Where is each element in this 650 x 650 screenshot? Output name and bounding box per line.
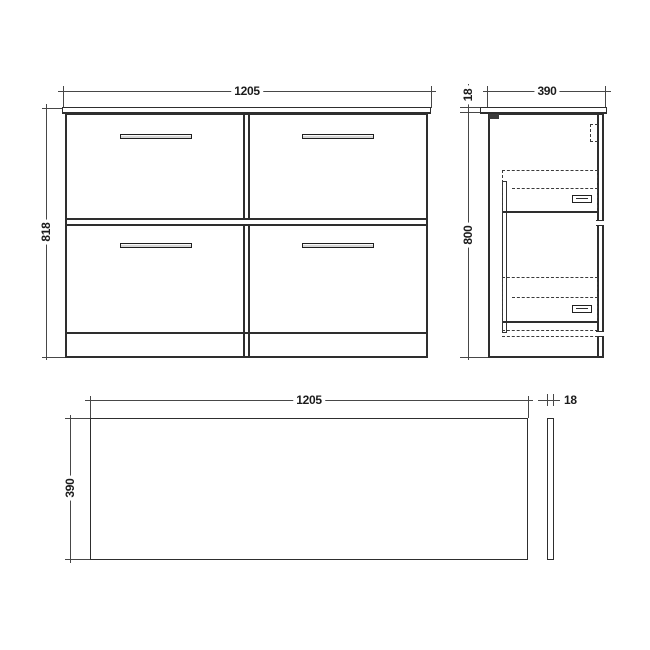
drawer-handle-bottom-right <box>302 243 374 248</box>
side-fixing-bracket <box>489 114 499 119</box>
drawer-handle-top-right <box>302 134 374 139</box>
front-height-extension-top <box>42 108 63 109</box>
side-lower-drawer-inner-line <box>512 297 598 298</box>
technical-drawing: 1205 818 390 18 800 <box>0 0 650 650</box>
plan-width-extension-left <box>90 396 91 418</box>
side-worktop-thickness-label: 18 <box>461 86 475 105</box>
side-upper-drawer-runner-slot <box>576 198 588 199</box>
plan-depth-extension-top <box>65 418 90 419</box>
side-height-extension-bottom <box>460 357 489 358</box>
plan-depth-extension-bottom <box>65 559 90 560</box>
side-lower-drawer-runner <box>572 305 592 313</box>
drawer-handle-top-left <box>120 134 192 139</box>
side-upper-drawer-bottom <box>503 211 598 213</box>
side-lower-drawer-runner-slot <box>576 308 588 309</box>
plan-width-extension-right <box>528 396 529 418</box>
side-upper-drawer-box <box>502 170 598 213</box>
side-notch-bottom <box>590 141 598 142</box>
front-height-extension-bottom <box>42 357 66 358</box>
plan-panel-extension-right <box>553 394 554 406</box>
front-width-extension-right <box>431 86 432 108</box>
plan-panel-dimension-line <box>538 400 560 401</box>
drawer-handle-bottom-left <box>120 243 192 248</box>
side-height-label: 800 <box>461 222 475 247</box>
side-upper-drawer-inner-line <box>512 188 598 189</box>
side-lower-drawer-box <box>502 277 598 323</box>
side-drawer-front-gap-upper <box>596 220 604 226</box>
side-notch-vertical <box>590 124 591 142</box>
front-height-label: 818 <box>39 219 53 244</box>
side-notch-top <box>590 124 598 125</box>
front-width-extension-left <box>63 86 64 108</box>
side-lower-drawer-bottom <box>503 321 598 323</box>
front-center-divider <box>243 113 250 356</box>
plan-end-panel <box>547 418 554 560</box>
side-upper-drawer-runner <box>572 195 592 203</box>
side-worktop-extension-bottom <box>460 112 481 113</box>
plan-worktop-outline <box>90 418 528 560</box>
side-depth-extension-left <box>487 86 488 107</box>
side-bottom-rail-line-1 <box>502 330 598 331</box>
front-width-label: 1205 <box>231 84 263 98</box>
plan-panel-thickness-label: 18 <box>561 393 580 407</box>
side-depth-label: 390 <box>534 84 559 98</box>
front-plinth-line <box>67 332 426 334</box>
side-depth-extension-right <box>605 86 606 107</box>
plan-width-label: 1205 <box>293 393 325 407</box>
plan-depth-label: 390 <box>63 475 77 500</box>
side-worktop-extension-top <box>460 107 481 108</box>
side-bottom-rail-line-2 <box>502 336 598 337</box>
front-row-divider <box>67 218 426 226</box>
plan-panel-extension-left <box>547 394 548 406</box>
